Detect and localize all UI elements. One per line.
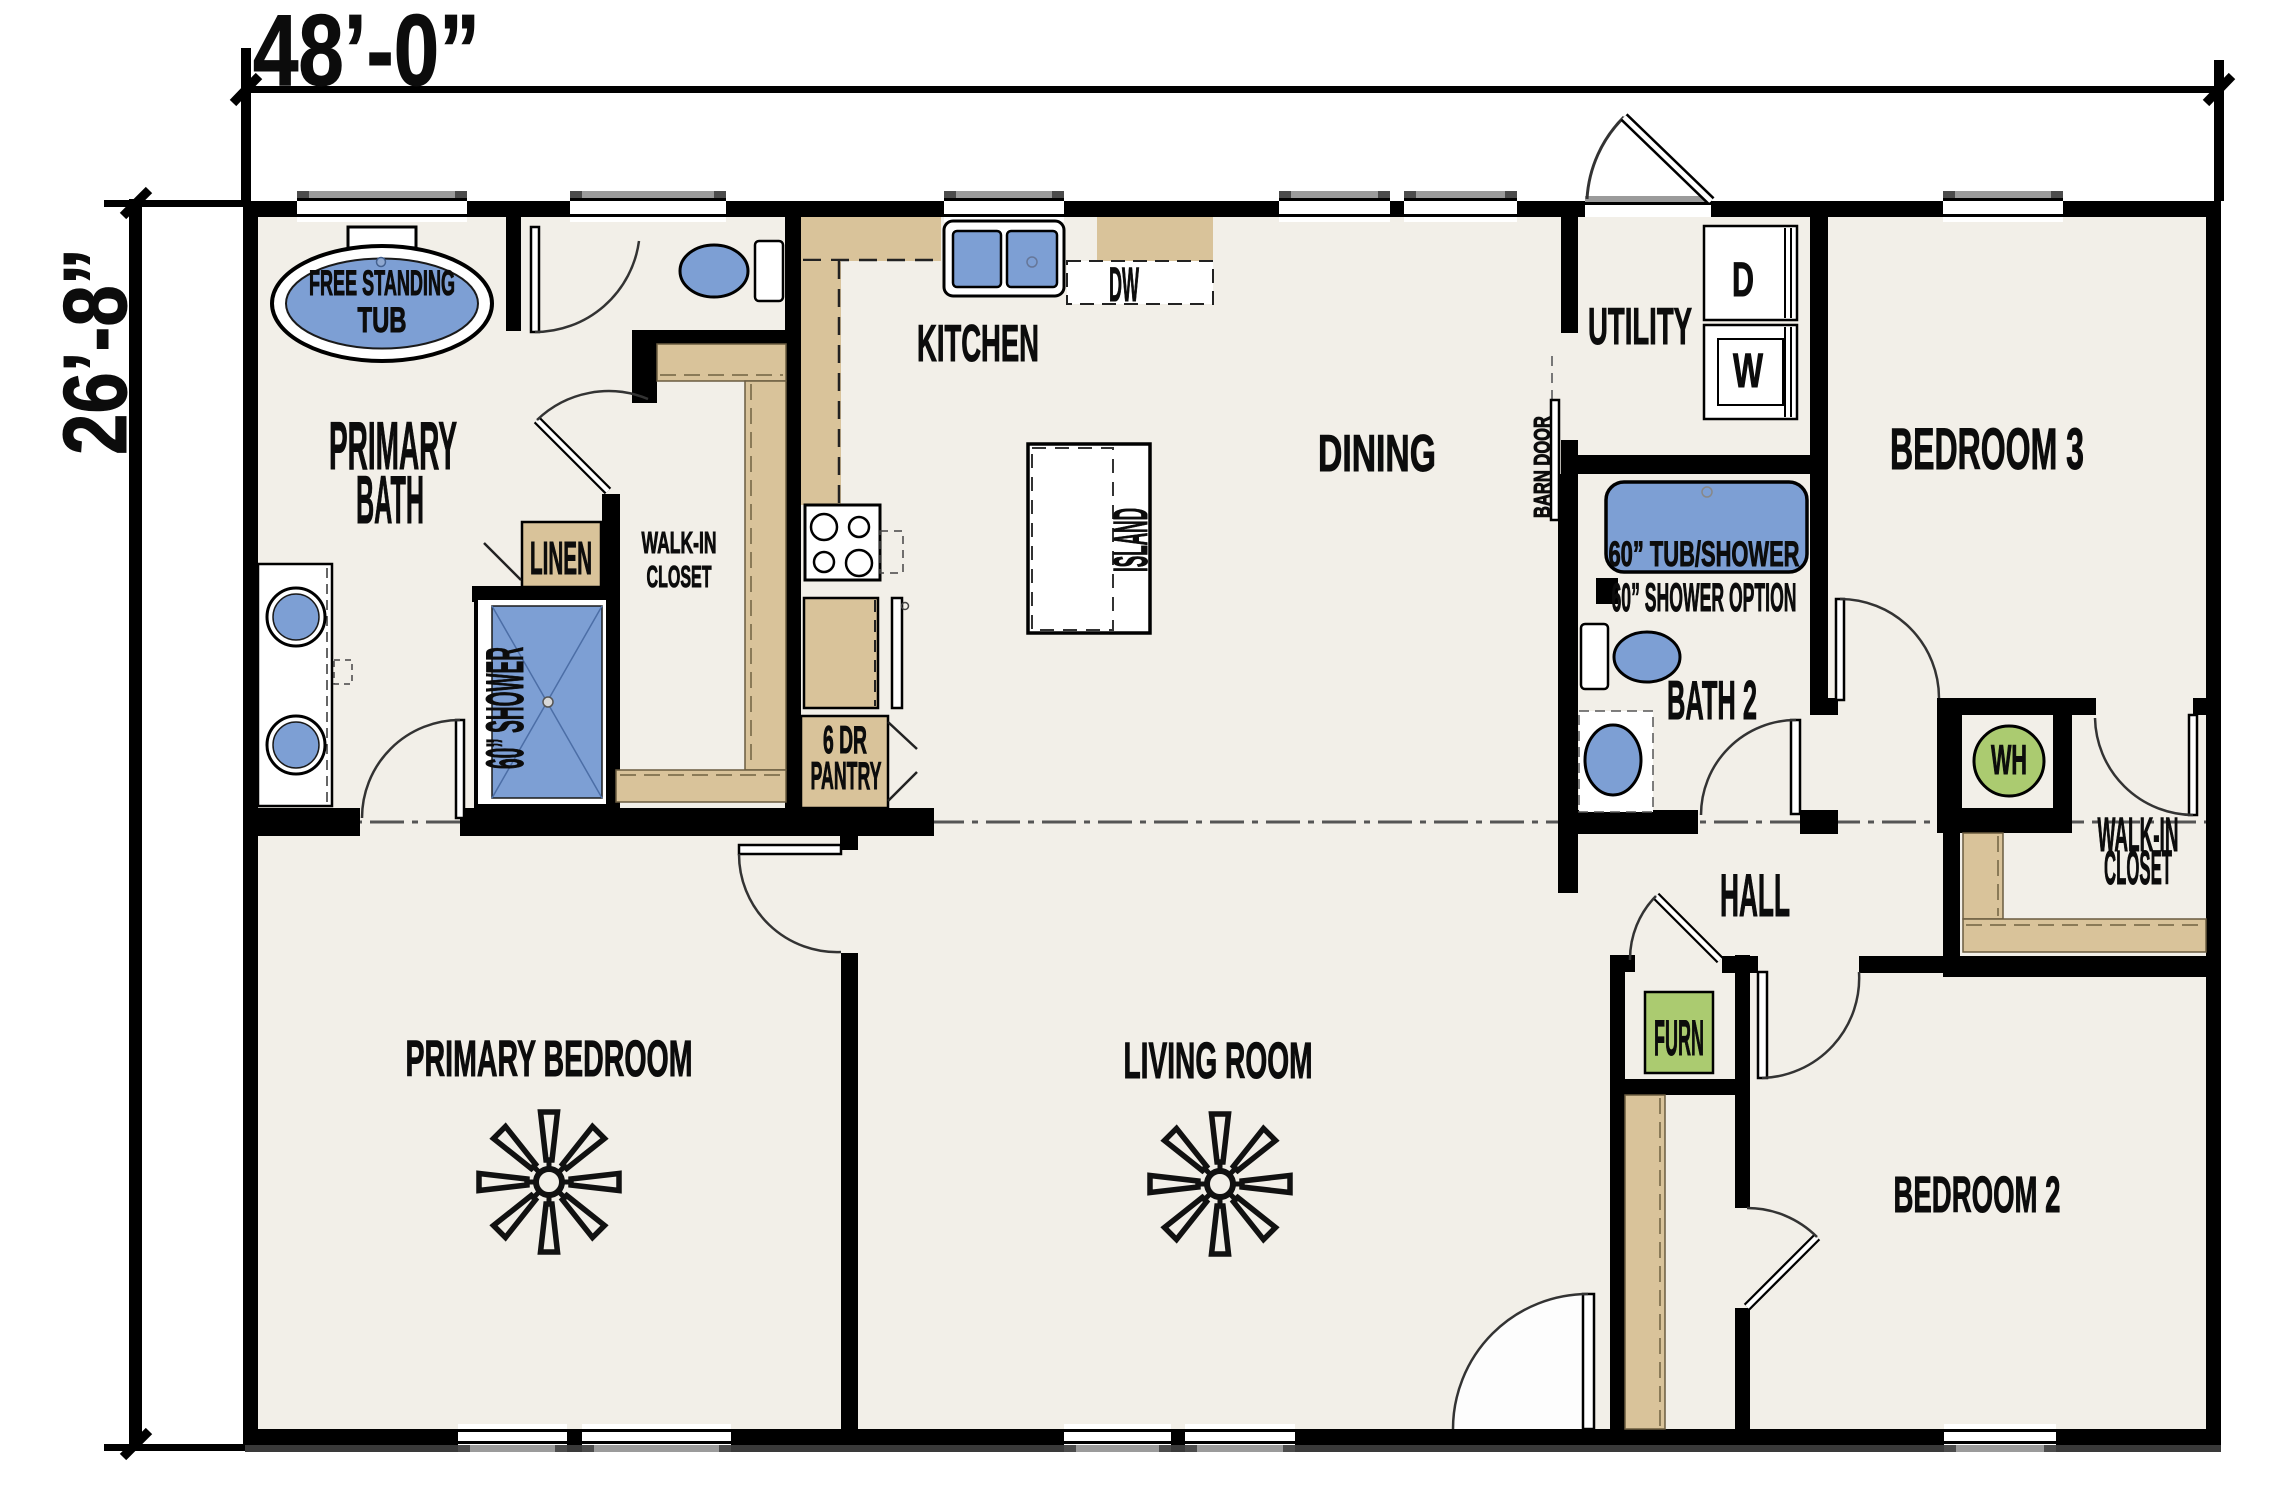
svg-text:PRIMARY BEDROOM: PRIMARY BEDROOM — [406, 1030, 693, 1087]
svg-text:60” TUB/SHOWER: 60” TUB/SHOWER — [1609, 535, 1800, 574]
svg-text:60” SHOWER OPTION: 60” SHOWER OPTION — [1612, 576, 1797, 620]
svg-text:DINING: DINING — [1318, 425, 1436, 483]
svg-text:BATH: BATH — [356, 462, 424, 538]
svg-text:60” SHOWER: 60” SHOWER — [476, 647, 535, 769]
svg-text:TUB: TUB — [358, 301, 407, 340]
svg-text:BEDROOM 2: BEDROOM 2 — [1894, 1166, 2061, 1223]
svg-text:48’-0”: 48’-0” — [253, 0, 480, 107]
svg-text:UTILITY: UTILITY — [1588, 298, 1692, 356]
svg-text:WH: WH — [1991, 736, 2027, 783]
svg-text:CLOSET: CLOSET — [2104, 842, 2172, 895]
svg-text:LINEN: LINEN — [530, 532, 592, 584]
svg-text:W: W — [1733, 345, 1763, 398]
svg-text:PANTRY: PANTRY — [811, 755, 882, 798]
svg-text:BATH 2: BATH 2 — [1667, 669, 1757, 731]
svg-text:HALL: HALL — [1720, 862, 1790, 929]
svg-text:DW: DW — [1109, 259, 1139, 312]
svg-text:FREE STANDING: FREE STANDING — [309, 264, 455, 303]
svg-text:WALK-IN: WALK-IN — [642, 525, 717, 560]
svg-text:BARN DOOR: BARN DOOR — [1529, 416, 1555, 518]
svg-text:BEDROOM 3: BEDROOM 3 — [1890, 417, 2084, 482]
svg-text:KITCHEN: KITCHEN — [917, 315, 1039, 373]
svg-text:D: D — [1732, 254, 1754, 307]
svg-text:LIVING ROOM: LIVING ROOM — [1124, 1032, 1313, 1089]
svg-text:26’-8”: 26’-8” — [46, 248, 146, 455]
svg-text:ISLAND: ISLAND — [1105, 508, 1158, 572]
svg-text:FURN: FURN — [1654, 1010, 1704, 1066]
svg-text:CLOSET: CLOSET — [647, 559, 712, 594]
